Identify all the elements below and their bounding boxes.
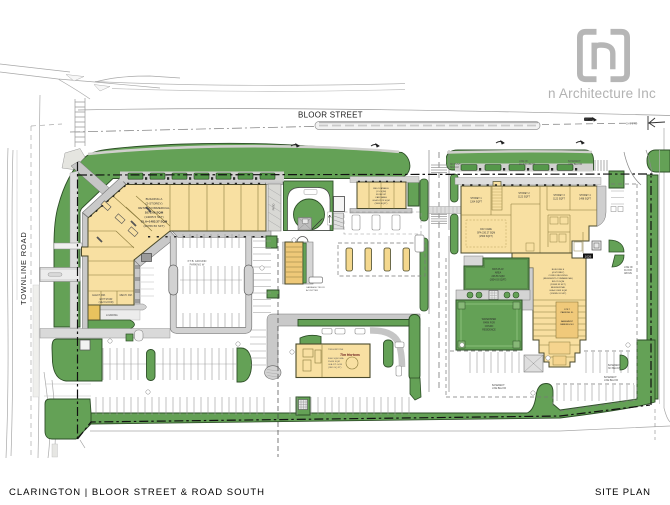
svg-text:RELOCATABLE: RELOCATABLE xyxy=(373,187,389,190)
svg-text:AREA: AREA xyxy=(495,272,502,275)
svg-text:BASEMENT: BASEMENT xyxy=(608,364,621,367)
svg-text:BLOOR STREET: BLOOR STREET xyxy=(298,111,363,120)
svg-text:MECH. RM.: MECH. RM. xyxy=(120,294,133,297)
svg-text:(20963.93 SFT): (20963.93 SFT) xyxy=(550,284,566,286)
svg-text:LINE OF: LINE OF xyxy=(519,161,529,163)
svg-text:(1.5 SQM): (1.5 SQM) xyxy=(376,191,386,193)
svg-text:(2-STOREY): (2-STOREY) xyxy=(146,202,163,206)
svg-text:CAR WASH: CAR WASH xyxy=(375,196,387,199)
svg-text:(1841 SQ FT): (1841 SQ FT) xyxy=(328,367,342,369)
svg-text:1264 SQFT: 1264 SQFT xyxy=(470,202,482,204)
svg-text:BUILDING E: BUILDING E xyxy=(552,269,565,271)
svg-text:RESIDENTIAL: RESIDENTIAL xyxy=(551,286,566,289)
svg-text:TOWNLINE ROAD: TOWNLINE ROAD xyxy=(19,231,28,305)
svg-text:(124985.31 SFT): (124985.31 SFT) xyxy=(550,293,567,295)
svg-text:LOADING: LOADING xyxy=(106,313,118,317)
svg-text:1122 SQFT: 1122 SQFT xyxy=(553,199,565,201)
svg-text:(4-STOREY): (4-STOREY) xyxy=(552,272,565,274)
svg-text:CLARINGTON | BLOOR STREET & RO: CLARINGTON | BLOOR STREET & ROAD SOUTH xyxy=(9,487,265,498)
svg-text:BASEMENT: BASEMENT xyxy=(604,376,617,379)
svg-text:1075.06 SQM: 1075.06 SQM xyxy=(145,211,164,215)
svg-text:NO PUSH: NO PUSH xyxy=(450,164,461,166)
svg-text:PARKING W: PARKING W xyxy=(190,263,205,267)
svg-text:RETAIL/COMMERCIAL: RETAIL/COMMERCIAL xyxy=(138,206,170,210)
svg-text:GLA 167.23 SQM: GLA 167.23 SQM xyxy=(372,199,389,202)
svg-text:STOREY 4: STOREY 4 xyxy=(579,195,591,197)
svg-text:STILT: STILT xyxy=(564,309,570,311)
svg-text:ABOVE: ABOVE xyxy=(624,272,632,275)
svg-text:CONDO: CONDO xyxy=(485,326,494,328)
svg-text:1498 SQFT: 1498 SQFT xyxy=(579,199,591,201)
svg-text:1026: 1026 xyxy=(585,255,592,259)
svg-text:WATERSHED: WATERSHED xyxy=(482,318,497,321)
svg-text:(1800 SQFT): (1800 SQFT) xyxy=(375,203,388,205)
svg-text:(2500 SQFT): (2500 SQFT) xyxy=(479,236,493,238)
svg-text:SITE PLAN: SITE PLAN xyxy=(595,487,651,498)
svg-text:2040 E RD: 2040 E RD xyxy=(626,124,638,126)
svg-text:GFA-230.27 SQM: GFA-230.27 SQM xyxy=(477,232,495,235)
svg-text:STOREY 1: STOREY 1 xyxy=(470,198,482,200)
svg-text:GLA-F 0303 SQM: GLA-F 0303 SQM xyxy=(549,289,567,292)
svg-text:PATIO: PATIO xyxy=(273,203,276,210)
svg-text:STOREY 2: STOREY 2 xyxy=(518,193,530,195)
svg-text:BASEMENT: BASEMENT xyxy=(568,160,581,163)
svg-text:LINE BELOW: LINE BELOW xyxy=(604,380,619,382)
svg-text:LINE BELOW: LINE BELOW xyxy=(492,388,507,390)
svg-text:ACCEPTER: ACCEPTER xyxy=(306,289,318,292)
svg-text:PARKING NO: PARKING NO xyxy=(560,323,574,326)
svg-text:NO BELOW: NO BELOW xyxy=(608,368,621,370)
svg-text:DAY CARE: DAY CARE xyxy=(480,228,492,231)
svg-text:RESIDENCE: RESIDENCE xyxy=(482,330,496,332)
svg-text:STOREY 3: STOREY 3 xyxy=(553,195,565,197)
svg-text:(14065.5 SFT): (14065.5 SFT) xyxy=(144,215,163,219)
svg-text:KIDS PLAY: KIDS PLAY xyxy=(492,268,504,271)
svg-text:FLOOR ABOVE: FLOOR ABOVE xyxy=(519,163,536,166)
svg-text:BASEMENT: BASEMENT xyxy=(561,320,574,323)
svg-text:(RESIDENT'L/COMMERCIAL): (RESIDENT'L/COMMERCIAL) xyxy=(543,277,573,280)
svg-text:246.56 SQM: 246.56 SQM xyxy=(492,276,505,278)
svg-text:(1&2 FLOOR): (1&2 FLOOR) xyxy=(99,301,114,304)
svg-text:CONDO BUILDING: CONDO BUILDING xyxy=(548,275,567,277)
svg-text:PARK FOR: PARK FOR xyxy=(483,322,495,325)
svg-text:GLA=1483.37 SQM: GLA=1483.37 SQM xyxy=(141,220,168,224)
svg-text:TIM HORTONS: TIM HORTONS xyxy=(328,349,344,351)
svg-text:LINE OF: LINE OF xyxy=(624,267,634,269)
svg-text:FLOOR: FLOOR xyxy=(624,270,632,272)
svg-text:3000 SQM GFA: 3000 SQM GFA xyxy=(328,357,344,360)
svg-text:P.T.B. GROUND: P.T.B. GROUND xyxy=(188,259,207,263)
svg-text:ELECT. RM.: ELECT. RM. xyxy=(92,294,105,297)
svg-text:BASEMENT: BASEMENT xyxy=(492,384,505,387)
svg-text:Tim Hortons: Tim Hortons xyxy=(340,353,360,357)
svg-text:25440 SQM: 25440 SQM xyxy=(328,361,340,363)
svg-text:GARBAGE TRUCK: GARBAGE TRUCK xyxy=(306,286,325,289)
svg-text:GLA 171.04 M: GLA 171.04 M xyxy=(328,363,342,366)
svg-text:PARKING FL: PARKING FL xyxy=(561,311,575,314)
svg-text:BUILDING A: BUILDING A xyxy=(146,197,163,201)
svg-text:845.76 SQM: 845.76 SQM xyxy=(552,281,564,283)
svg-text:KIOSK W/: KIOSK W/ xyxy=(376,194,386,196)
svg-text:(2654.03 SQFT): (2654.03 SQFT) xyxy=(490,280,507,282)
svg-text:LINE BELOW: LINE BELOW xyxy=(568,164,583,166)
svg-text:n Architecture Inc: n Architecture Inc xyxy=(548,86,656,101)
svg-text:1122 SQFT: 1122 SQFT xyxy=(518,197,530,199)
svg-text:(20766.56 SFT): (20766.56 SFT) xyxy=(143,224,164,228)
svg-text:SIGN LK: SIGN LK xyxy=(450,167,460,169)
